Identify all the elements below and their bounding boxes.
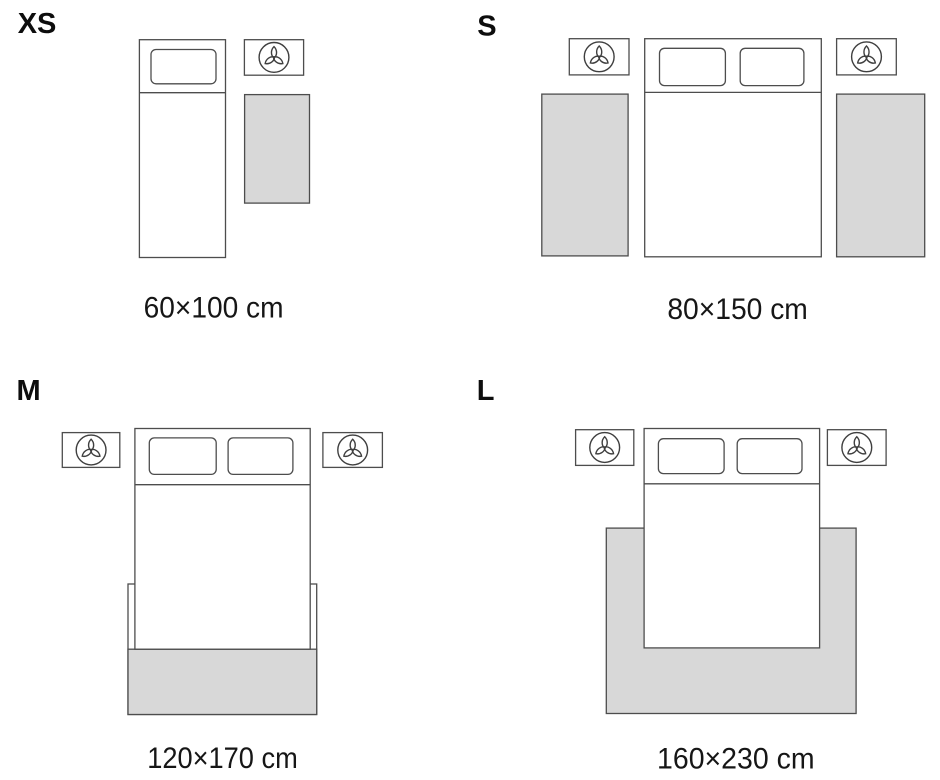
svg-text:160×230 cm: 160×230 cm (657, 742, 815, 775)
svg-text:120×170 cm: 120×170 cm (147, 742, 298, 775)
svg-text:60×100 cm: 60×100 cm (144, 292, 284, 325)
svg-text:S: S (477, 11, 496, 43)
svg-text:80×150 cm: 80×150 cm (667, 293, 808, 326)
svg-text:M: M (17, 375, 41, 407)
svg-text:L: L (477, 375, 495, 407)
svg-text:XS: XS (18, 8, 57, 40)
